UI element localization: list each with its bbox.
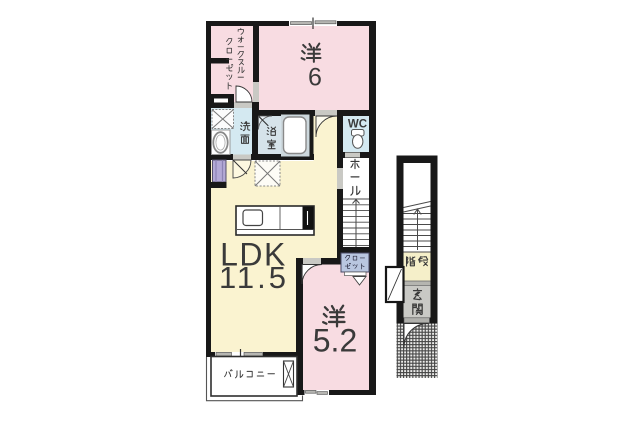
svg-text:11.5: 11.5 <box>219 260 289 295</box>
svg-text:5.2: 5.2 <box>313 323 357 359</box>
svg-text:6: 6 <box>308 64 322 92</box>
svg-text:WC: WC <box>348 119 367 131</box>
